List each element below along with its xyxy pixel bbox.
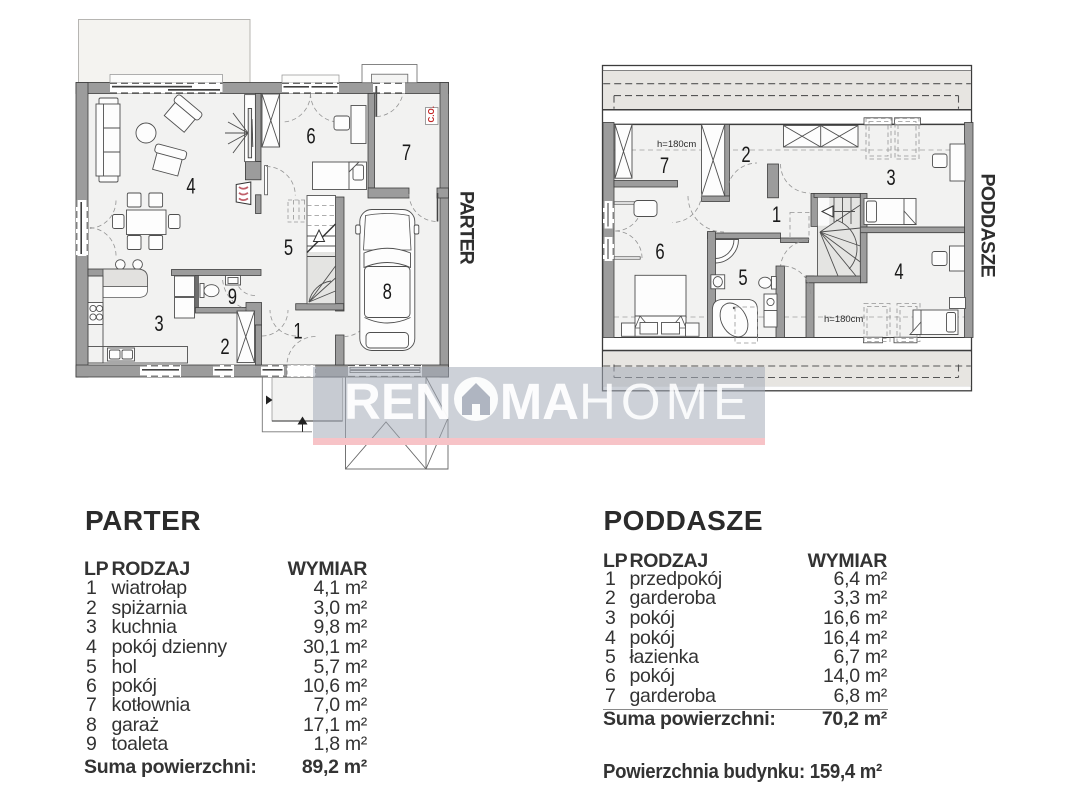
svg-text:5: 5 [284,236,293,261]
svg-text:PODDASZE: PODDASZE [977,174,999,278]
svg-text:h=180cm: h=180cm [824,314,863,325]
svg-text:5: 5 [738,266,747,291]
svg-text:1: 1 [772,203,781,228]
svg-text:C.O.: C.O. [427,106,436,122]
svg-text:7: 7 [660,154,669,179]
svg-text:h=180cm: h=180cm [657,139,696,150]
svg-text:PARTER: PARTER [456,191,478,265]
svg-text:6: 6 [306,124,315,149]
svg-text:8: 8 [383,280,392,305]
svg-text:2: 2 [220,335,229,360]
svg-text:9: 9 [228,285,237,310]
svg-text:4: 4 [894,260,903,285]
svg-text:3: 3 [154,312,163,337]
svg-text:3: 3 [886,166,895,191]
svg-text:1: 1 [293,319,302,344]
svg-text:2: 2 [741,143,750,168]
svg-text:4: 4 [186,174,195,199]
svg-text:6: 6 [655,240,664,265]
svg-text:7: 7 [402,141,411,166]
